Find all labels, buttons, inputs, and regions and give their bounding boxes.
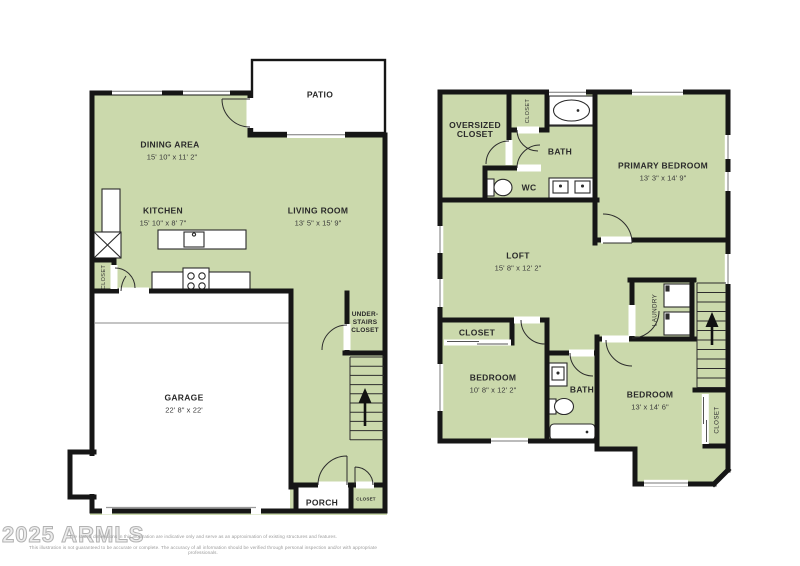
garage-label: GARAGE (164, 394, 203, 403)
entry-closet-label: CLOSET (101, 265, 107, 289)
toilet-icon (494, 179, 512, 195)
tub-icon (554, 100, 590, 121)
wc-label: WC (522, 184, 537, 193)
right-closet-label: CLOSET (714, 406, 721, 433)
top-closet-label: CLOSET (525, 99, 531, 123)
dining-label: DINING AREA (140, 141, 199, 150)
dining-dims: 15' 10" x 11' 2" (147, 153, 198, 162)
garage-dims: 22' 8" x 22' (165, 406, 203, 415)
toilet-tank (487, 179, 494, 196)
second-floor-plan (437, 89, 732, 486)
fridge-icon (102, 189, 120, 232)
bedroom-left-label: BEDROOM (470, 374, 517, 383)
floorplan-page: PATIO DINING AREA 15' 10" x 11' 2" KITCH… (0, 0, 800, 566)
bath-middle-label: BATH (570, 386, 594, 395)
primary-bedroom-label: PRIMARY BEDROOM (618, 162, 708, 171)
bedroom-right-dims: 13' x 14' 6" (631, 403, 669, 412)
primary-bedroom-dims: 13' 3" x 14' 9" (640, 174, 687, 183)
bedroom-right-label: BEDROOM (627, 391, 674, 400)
living-dims: 13' 5" x 15' 9" (295, 219, 342, 228)
kitchen-dims: 15' 10" x 8' 7" (140, 219, 187, 228)
stove-icon (183, 268, 209, 292)
loft-label: LOFT (506, 252, 529, 261)
disclaimer-line2: This illustration is not guaranteed to b… (28, 545, 378, 555)
kitchen-label: KITCHEN (143, 207, 183, 216)
bedroom-closet-label: CLOSET (459, 329, 495, 338)
floorplan-canvas (0, 0, 800, 566)
toilet-icon (555, 399, 574, 415)
patio-label: PATIO (307, 91, 333, 100)
porch-label: PORCH (306, 499, 338, 508)
living-label: LIVING ROOM (288, 207, 348, 216)
laundry-label: LAUNDRY (652, 294, 659, 326)
first-floor-plan (70, 60, 387, 515)
disclaimer-line1: The stated dimensions in this illustrati… (28, 534, 378, 539)
bedroom-left-dims: 10' 8" x 12' 2" (470, 386, 517, 395)
under-stairs-closet-label: UNDER- STAIRS CLOSET (351, 311, 379, 335)
porch-closet-label: CLOSET (356, 495, 375, 504)
bath-top-label: BATH (548, 148, 572, 157)
oversized-closet-label: OVERSIZED CLOSET (449, 121, 501, 139)
loft-dims: 15' 8" x 12' 2" (495, 264, 542, 273)
